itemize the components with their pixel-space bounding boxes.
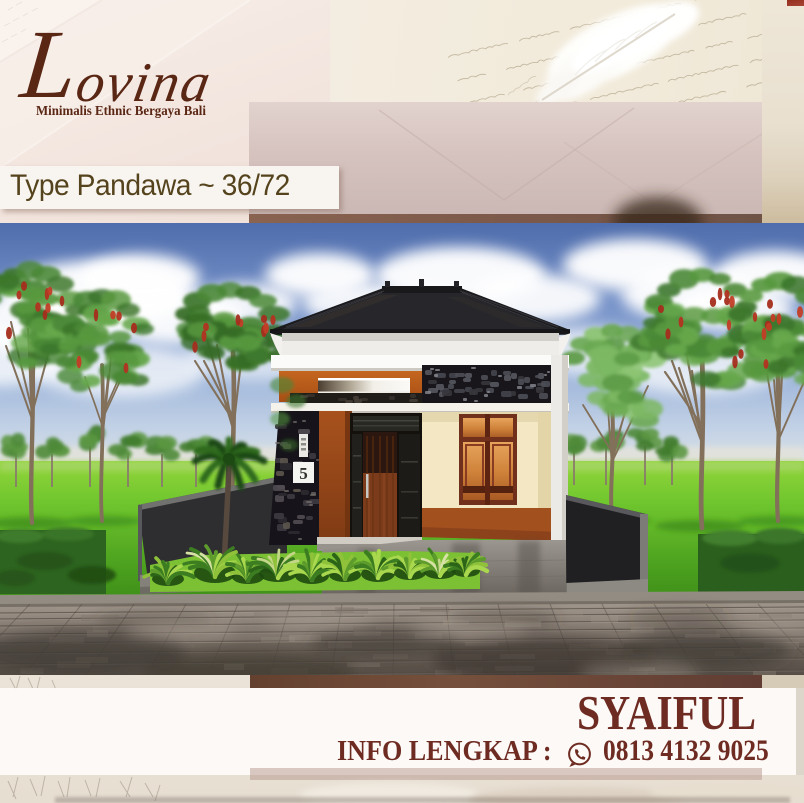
svg-text:5: 5 [299,464,308,483]
